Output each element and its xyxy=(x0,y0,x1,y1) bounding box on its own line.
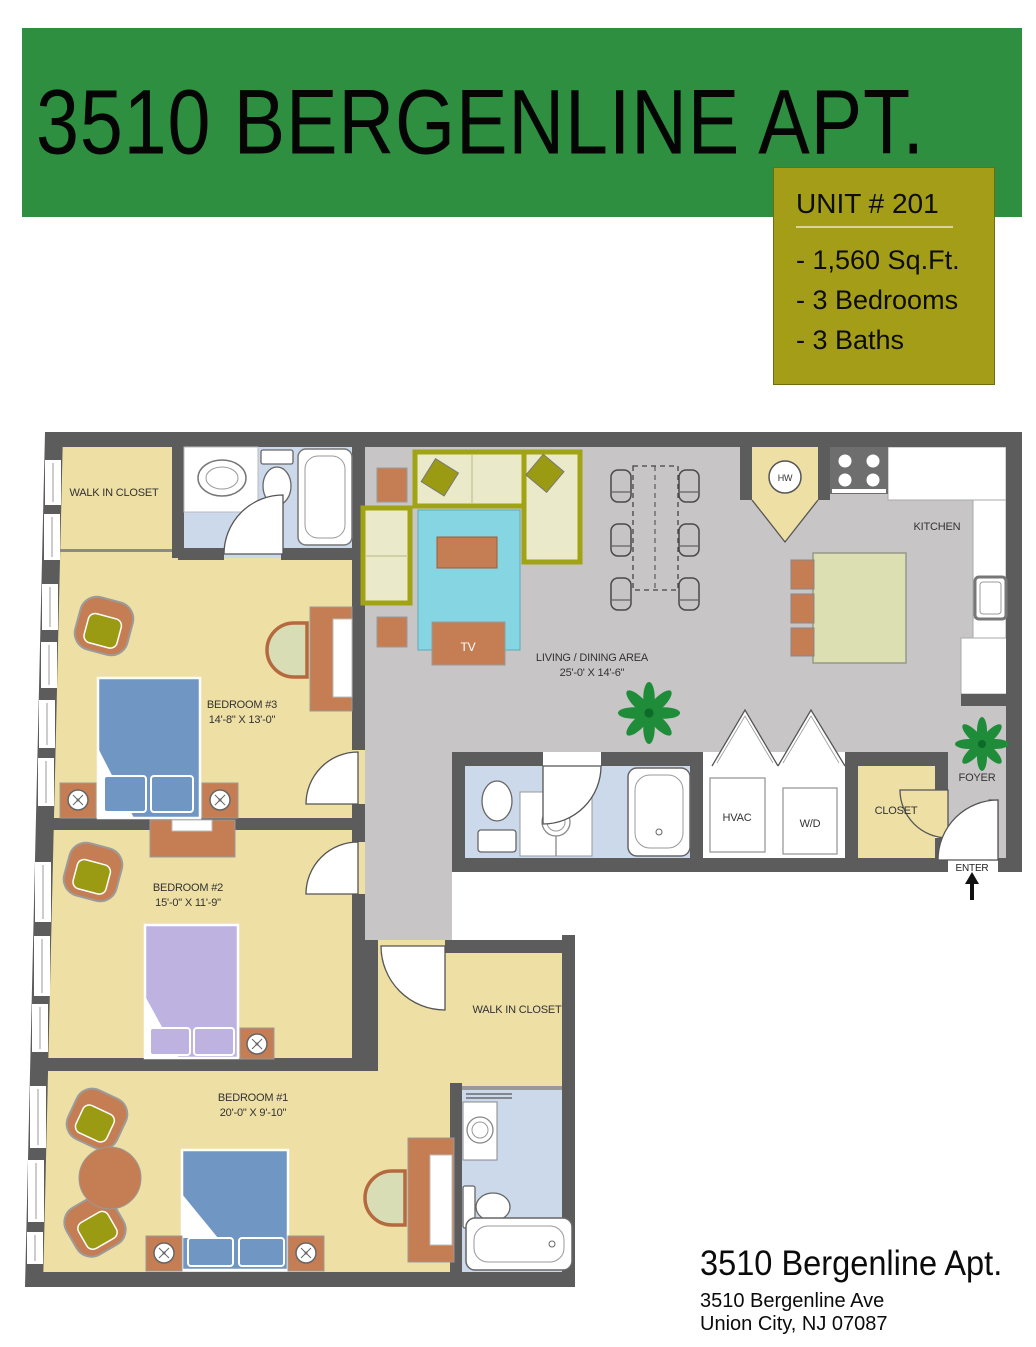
wic-bottom-label: WALK IN CLOSET xyxy=(472,1004,562,1016)
dining-chair-icon xyxy=(611,578,631,610)
pillow-icon xyxy=(150,1028,190,1055)
enter-marker xyxy=(965,872,979,900)
bathroom1-partition xyxy=(462,1086,562,1090)
counter-icon xyxy=(888,447,1006,500)
refrigerator-icon xyxy=(961,638,1010,694)
lamp-icon xyxy=(296,1243,316,1263)
side-table-icon xyxy=(377,617,407,647)
lamp-icon xyxy=(210,790,230,810)
bedroom1-dims: 20'-0" X 9'-10" xyxy=(220,1107,287,1119)
pillow-icon xyxy=(239,1238,284,1266)
pillow-icon xyxy=(194,1028,234,1055)
tv-label: TV xyxy=(461,640,476,654)
toilet-tank-icon xyxy=(261,450,293,464)
dining-chair-icon xyxy=(679,470,699,502)
living-label: LIVING / DINING AREA xyxy=(536,652,649,664)
pillow-icon xyxy=(104,776,146,812)
living-dims: 25'-0' X 14'-6" xyxy=(560,667,625,679)
lamp-icon xyxy=(154,1243,174,1263)
bedroom1-label: BEDROOM #1 xyxy=(218,1092,288,1104)
counter-icon xyxy=(973,618,1006,638)
bedroom3-label: BEDROOM #3 xyxy=(207,699,277,711)
pillow-icon xyxy=(188,1238,233,1266)
desk-inset xyxy=(430,1155,452,1245)
page-title: 3510 BERGENLINE APT. xyxy=(36,70,925,175)
stove-icon xyxy=(830,447,888,494)
bedroom2-dims: 15'-0" X 11'-9" xyxy=(155,897,221,909)
desk-inset xyxy=(333,619,352,697)
stool-icon xyxy=(791,560,814,589)
lamp-icon xyxy=(68,790,88,810)
enter-label: ENTER xyxy=(956,863,989,874)
lamp-icon xyxy=(247,1034,267,1054)
footer-address-line2: Union City, NJ 07087 xyxy=(700,1313,1025,1336)
pillow-icon xyxy=(151,776,193,812)
kitchen-island-icon xyxy=(813,553,906,663)
dresser-mirror-icon xyxy=(172,820,212,831)
toilet-icon xyxy=(482,781,512,821)
stool-icon xyxy=(791,594,814,623)
footer-address-block: 3510 Bergenline Apt. 3510 Bergenline Ave… xyxy=(700,1244,1025,1336)
dining-chair-icon xyxy=(611,470,631,502)
hw-label: HW xyxy=(778,473,793,483)
toilet-tank-icon xyxy=(478,830,516,852)
closet-shelf-line xyxy=(47,549,172,552)
side-table-icon xyxy=(377,468,407,502)
unit-baths: - 3 Baths xyxy=(796,320,994,360)
desk-chair-icon xyxy=(365,1171,405,1225)
unit-info-box: UNIT # 201 - 1,560 Sq.Ft. - 3 Bedrooms -… xyxy=(773,167,995,385)
vanity-icon xyxy=(463,1102,497,1160)
unit-number: UNIT # 201 xyxy=(796,188,953,228)
hvac-label: HVAC xyxy=(723,812,752,824)
coffee-table-icon xyxy=(437,537,497,568)
toilet-icon xyxy=(476,1193,510,1221)
foyer-label: FOYER xyxy=(959,772,996,784)
unit-bedrooms: - 3 Bedrooms xyxy=(796,280,994,320)
desk-chair-icon xyxy=(267,623,307,677)
flyer-page: 3510 BERGENLINE APT. UNIT # 201 - 1,560 … xyxy=(0,0,1036,1347)
round-table-icon xyxy=(79,1147,141,1209)
dining-chair-icon xyxy=(679,578,699,610)
dining-chair-icon xyxy=(611,524,631,556)
footer-address-line1: 3510 Bergenline Ave xyxy=(700,1290,1025,1313)
plant-icon xyxy=(955,717,1009,771)
dining-chair-icon xyxy=(679,524,699,556)
closet-label: CLOSET xyxy=(875,805,918,817)
unit-sqft: - 1,560 Sq.Ft. xyxy=(796,240,994,280)
footer-title: 3510 Bergenline Apt. xyxy=(700,1244,1002,1284)
kitchen-label: KITCHEN xyxy=(914,521,961,533)
bedroom3-dims: 14'-8" X 13'-0" xyxy=(209,714,276,726)
wic-top-label: WALK IN CLOSET xyxy=(69,487,159,499)
stool-icon xyxy=(791,628,814,656)
wd-label: W/D xyxy=(800,818,821,830)
plant-icon xyxy=(618,682,680,744)
bedroom2-label: BEDROOM #2 xyxy=(153,882,223,894)
